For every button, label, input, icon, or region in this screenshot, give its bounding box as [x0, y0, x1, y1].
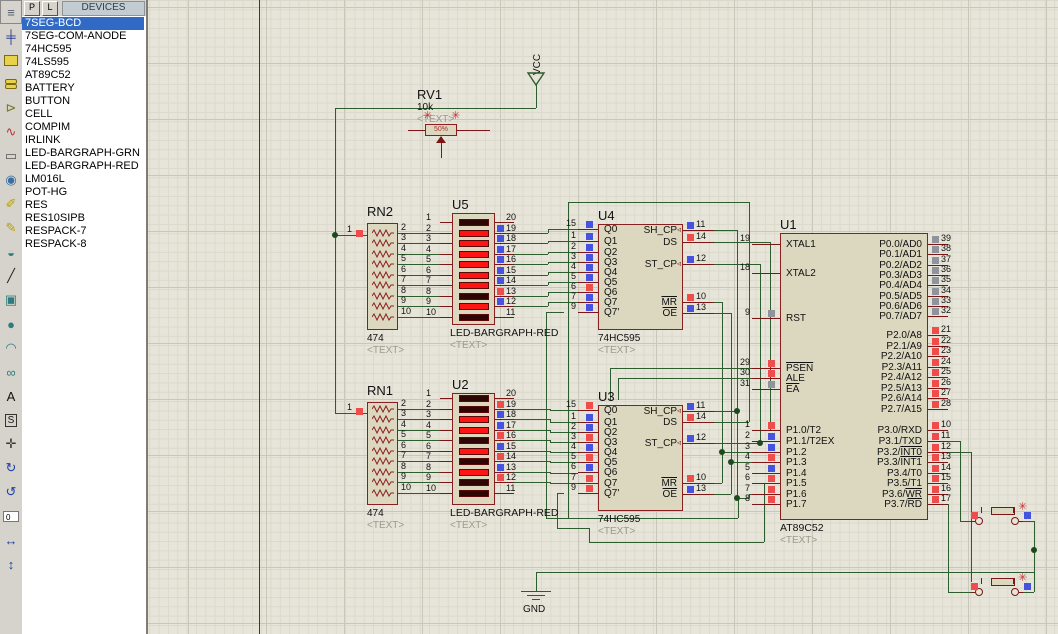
rn1-value: 474 [367, 508, 384, 519]
ic-pin-label: DS [605, 418, 677, 428]
bargraph-pin-number: 19 [506, 224, 516, 233]
ic-pin-number: 4 [728, 452, 750, 461]
ic-pin-label: P3.0/RXD [850, 426, 922, 436]
bargraph-pin [440, 461, 452, 462]
rn2-pin-number: 1 [347, 225, 352, 234]
bargraph-pin-number: 15 [506, 266, 516, 275]
logic-state-red [497, 288, 504, 295]
bargraph-pin [495, 317, 514, 318]
library-button[interactable]: L [42, 1, 58, 16]
logic-state-red [932, 422, 939, 429]
logic-state-red [932, 444, 939, 451]
device-item-res10sipb[interactable]: RES10SIPB [22, 212, 144, 225]
wire[interactable] [546, 518, 738, 519]
wire[interactable] [536, 572, 1034, 573]
wire[interactable] [514, 285, 548, 286]
bargraph-pin-number: 17 [506, 421, 516, 430]
logic-state-blue [497, 235, 504, 242]
device-item-at89c52[interactable]: AT89C52 [22, 69, 144, 82]
ic-pin [752, 389, 780, 390]
schematic-canvas[interactable]: VCCGNDRV110k<TEXT>✳✳50%RN223456789101474… [0, 0, 1058, 634]
wire[interactable] [1034, 521, 1035, 592]
ic-pin [752, 504, 780, 505]
ic-pin [578, 229, 598, 230]
wire[interactable] [398, 317, 440, 318]
resistor-element [372, 436, 394, 444]
wire[interactable] [714, 230, 737, 231]
bargraph-pin-number: 3 [426, 234, 431, 243]
bargraph-pin [440, 398, 452, 399]
device-item-74ls595[interactable]: 74LS595 [22, 56, 144, 69]
logic-state-blue [768, 444, 775, 451]
u1-text: <TEXT> [780, 535, 817, 546]
device-item-7seg-bcd[interactable]: 7SEG-BCD [22, 17, 144, 30]
logic-state-red [932, 359, 939, 366]
device-item-cell[interactable]: CELL [22, 108, 144, 121]
device-item-respack-7[interactable]: RESPACK-7 [22, 225, 144, 238]
wire[interactable] [546, 312, 547, 518]
led-segment-on [459, 416, 489, 423]
logic-state-blue [687, 305, 694, 312]
device-item-74hc595[interactable]: 74HC595 [22, 43, 144, 56]
logic-state-gray [768, 381, 775, 388]
markers-mode-icon[interactable]: ✛ [0, 432, 22, 456]
2d-circle-mode-icon[interactable]: ● [0, 312, 22, 336]
resistor-element [372, 447, 394, 455]
2d-path-mode-icon[interactable]: ∞ [0, 360, 22, 384]
ic-pin-number: 38 [941, 244, 951, 253]
ic-pin [683, 313, 714, 314]
wire[interactable] [514, 440, 550, 441]
ic-pin-number: 39 [941, 234, 951, 243]
wire[interactable] [770, 242, 771, 430]
bargraph-pin-number: 4 [426, 245, 431, 254]
bargraph-pin-number: 13 [506, 287, 516, 296]
bargraph-pin-number: 5 [426, 255, 431, 264]
resistor-element [372, 271, 394, 279]
bargraph-pin-number: 10 [426, 484, 436, 493]
ic-pin-label: P1.1/T2EX [786, 437, 834, 447]
wire[interactable] [536, 85, 537, 108]
logic-state-blue [687, 403, 694, 410]
logic-state-blue [497, 298, 504, 305]
wire[interactable] [568, 202, 749, 203]
u4-ref: U4 [598, 209, 615, 222]
wire[interactable] [514, 419, 550, 420]
component-mode-icon[interactable] [0, 48, 22, 72]
logic-state-blue [497, 277, 504, 284]
logic-state-red [586, 402, 593, 409]
rv1-lead [457, 130, 490, 131]
rv1-body[interactable]: 50% [425, 124, 457, 136]
wire[interactable] [546, 312, 564, 313]
wire[interactable] [557, 528, 589, 529]
resistor-element [372, 260, 394, 268]
led-segment-on [459, 261, 489, 268]
logic-state-red [687, 294, 694, 301]
wire[interactable] [335, 108, 536, 109]
wire[interactable] [514, 409, 550, 410]
bus-mode-icon[interactable] [0, 72, 22, 96]
wire[interactable] [514, 296, 548, 297]
2d-symbol-mode-icon[interactable]: S [0, 408, 22, 432]
rv1-actuator-up[interactable]: ✳ [423, 111, 432, 122]
ic-pin-label: ALE [786, 374, 805, 384]
bargraph-pin-number: 11 [506, 308, 515, 317]
logic-state-red [932, 475, 939, 482]
ic-pin [752, 441, 780, 442]
bargraph-pin-number: 8 [426, 463, 431, 472]
ic-pin-number: 16 [941, 484, 951, 493]
push-button-1-actuator[interactable]: ✳ [1018, 502, 1027, 513]
bargraph-pin-number: 20 [506, 389, 516, 398]
ic-pin-label: P2.7/A15 [850, 405, 922, 415]
device-pin-mode-icon[interactable]: ╪ [0, 24, 22, 48]
push-button-2-lead [1019, 592, 1023, 593]
device-item-7seg-com-anode[interactable]: 7SEG-COM-ANODE [22, 30, 144, 43]
bargraph-pin [440, 243, 452, 244]
push-button-1-post [981, 507, 982, 513]
resistor-element [372, 239, 394, 247]
device-item-respack-8[interactable]: RESPACK-8 [22, 238, 144, 251]
gnd-symbol-bar [521, 591, 551, 592]
logic-state-red [497, 474, 504, 481]
resistor-element [372, 489, 394, 497]
bargraph-pin-number: 17 [506, 245, 516, 254]
bargraph-pin [440, 285, 452, 286]
wire-junction-dot [734, 408, 740, 414]
tape-recorder-mode-icon[interactable]: ▭ [0, 144, 22, 168]
wire-junction-dot [1031, 547, 1037, 553]
object-selector-header: P L DEVICES [22, 0, 146, 16]
wire[interactable] [514, 243, 548, 244]
wire[interactable] [948, 504, 949, 592]
mirror-horizontal-icon[interactable]: ↔ [0, 528, 22, 552]
device-item-led-bargraph-grn[interactable]: LED-BARGRAPH-GRN [22, 147, 144, 160]
ic-pin-number: 32 [941, 306, 951, 315]
bargraph-pin-number: 12 [506, 297, 516, 306]
ic-pin-number: 5 [554, 272, 576, 281]
rn1-pin-number: 3 [401, 409, 406, 418]
logic-state-blue [586, 304, 593, 311]
object-selector-panel: P L DEVICES 7SEG-BCD7SEG-COM-ANODE74HC59… [22, 0, 148, 634]
wire[interactable] [514, 482, 550, 483]
ic-pin [578, 252, 598, 253]
bargraph-pin [440, 493, 452, 494]
push-button-2-cap[interactable] [991, 578, 1015, 586]
logic-state-red [768, 370, 775, 377]
bargraph-pin-number: 2 [426, 224, 431, 233]
logic-state-red [586, 284, 593, 291]
device-item-pot-hg[interactable]: POT-HG [22, 186, 144, 199]
virtual-instruments-mode-icon[interactable]: ◒ [0, 240, 22, 264]
logic-state-red [932, 465, 939, 472]
push-button-1-lead [1019, 521, 1023, 522]
logic-state-gray [932, 267, 939, 274]
push-button-1-lead [971, 521, 975, 522]
ic-pin [683, 422, 714, 423]
ic-pin-number: 15 [554, 219, 576, 228]
current-probe-mode-icon[interactable]: ✎ [0, 216, 22, 240]
u2-ref: U2 [452, 378, 469, 391]
ic-pin [578, 292, 598, 293]
ic-pin-number: 15 [554, 400, 576, 409]
wire[interactable] [714, 302, 722, 303]
wire[interactable] [514, 233, 548, 234]
ic-pin-number: 17 [941, 494, 951, 503]
2d-line-mode-icon[interactable]: ╱ [0, 264, 22, 288]
ic-pin-label: OE [605, 309, 677, 319]
rotate-ccw-icon[interactable]: ↺ [0, 480, 22, 504]
rn1-ref: RN1 [367, 384, 393, 397]
ic-pin [683, 242, 714, 243]
rn1-pin-number: 10 [401, 483, 411, 492]
clock-input-mark: ◃ [677, 407, 681, 415]
gnd-symbol-bar [532, 599, 540, 600]
logic-state-blue [497, 443, 504, 450]
push-button-2-post [981, 578, 982, 584]
rn2-pin-number: 10 [401, 307, 411, 316]
logic-state-blue [687, 222, 694, 229]
ic-pin-number: 22 [941, 336, 951, 345]
logic-state-blue [497, 267, 504, 274]
rotation-angle-field[interactable]: 0 [0, 504, 22, 528]
push-button-1-cap[interactable] [991, 507, 1015, 515]
logic-state-blue [687, 435, 694, 442]
logic-state-red [932, 390, 939, 397]
ic-pin-label: P0.4/AD4 [850, 281, 922, 291]
bargraph-pin [440, 222, 452, 223]
gnd-label: GND [523, 604, 545, 615]
ic-pin [752, 452, 780, 453]
bargraph-pin [440, 254, 452, 255]
rv1-actuator-down[interactable]: ✳ [451, 111, 460, 122]
ic-pin-number: 14 [696, 412, 706, 421]
resistor-element [372, 426, 394, 434]
device-list: 7SEG-BCD7SEG-COM-ANODE74HC59574LS595AT89… [22, 17, 144, 634]
ic-pin-number: 14 [696, 232, 706, 241]
ic-pin [752, 244, 780, 245]
bargraph-pin [440, 419, 452, 420]
wire[interactable] [960, 441, 961, 521]
logic-state-blue [768, 465, 775, 472]
mirror-vertical-icon[interactable]: ↕ [0, 552, 22, 576]
voltage-probe-mode-icon[interactable]: ✐ [0, 192, 22, 216]
wire[interactable] [722, 302, 723, 483]
ic-pin [683, 264, 714, 265]
ic-pin-number: 10 [696, 292, 706, 301]
bargraph-pin [440, 472, 452, 473]
u3-text: <TEXT> [598, 526, 635, 537]
ic-pin-number: 11 [696, 220, 705, 229]
rotate-cw-icon[interactable]: ↻ [0, 456, 22, 480]
logic-state-red [932, 486, 939, 493]
ic-pin-number: 2 [728, 431, 750, 440]
logic-state-blue [586, 274, 593, 281]
logic-state-red [932, 369, 939, 376]
ic-pin-number: 13 [941, 452, 951, 461]
device-item-battery[interactable]: BATTERY [22, 82, 144, 95]
logic-state-gray [932, 288, 939, 295]
wire[interactable] [514, 254, 548, 255]
ic-pin [752, 430, 780, 431]
wire[interactable] [335, 108, 336, 413]
device-item-lm016l[interactable]: LM016L [22, 173, 144, 186]
ic-pin-number: 13 [696, 303, 706, 312]
logic-state-red [687, 475, 694, 482]
logic-state-red [932, 348, 939, 355]
generator-mode-icon[interactable]: ◉ [0, 168, 22, 192]
graph-mode-icon[interactable]: ∿ [0, 120, 22, 144]
ic-pin-label: EA [786, 385, 799, 395]
2d-text-mode-icon[interactable]: A [0, 384, 22, 408]
ic-pin-number: 4 [554, 442, 576, 451]
bargraph-pin [440, 264, 452, 265]
ic-pin [578, 452, 598, 453]
wire[interactable] [514, 264, 548, 265]
wire[interactable] [398, 493, 440, 494]
ic-pin-label: ST_CP [605, 439, 677, 449]
logic-state-blue [586, 254, 593, 261]
u2-text: <TEXT> [450, 520, 487, 531]
logic-state-red [768, 475, 775, 482]
u2-part: LED-BARGRAPH-RED [450, 508, 559, 519]
bargraph-pin [440, 275, 452, 276]
logic-state-blue [497, 246, 504, 253]
wire[interactable] [514, 306, 548, 307]
bargraph-pin-number: 7 [426, 452, 431, 461]
ic-pin [578, 282, 598, 283]
ic-pin-label: P2.6/A14 [850, 394, 922, 404]
logic-state-gray [932, 236, 939, 243]
2d-arc-mode-icon[interactable]: ◠ [0, 336, 22, 360]
mode-toolbar: ≡╪⊳∿▭◉✐✎◒╱▣●◠∞AS✛↻↺0↔↕ [0, 0, 23, 634]
subcircuit-mode-icon[interactable]: ⊳ [0, 96, 22, 120]
ic-pin-number: 13 [696, 484, 706, 493]
wire[interactable] [589, 542, 764, 543]
ic-pin [752, 483, 780, 484]
wire[interactable] [618, 378, 619, 400]
vcc-power-terminal[interactable] [526, 72, 546, 88]
logic-state-blue [586, 233, 593, 240]
bargraph-pin-number: 4 [426, 421, 431, 430]
wire[interactable] [764, 483, 765, 542]
ic-pin-number: 4 [554, 262, 576, 271]
device-item-irlink[interactable]: IRLINK [22, 134, 144, 147]
rn2-pin-number: 7 [401, 275, 406, 284]
ic-pin [578, 442, 598, 443]
bargraph-pin-number: 16 [506, 255, 516, 264]
rn1-pin-number: 4 [401, 420, 406, 429]
led-segment-on [459, 272, 489, 279]
led-segment-on [459, 448, 489, 455]
ic-pin [578, 262, 598, 263]
ic-pin-number: 7 [554, 292, 576, 301]
ic-pin [752, 318, 780, 319]
logic-state-red [932, 401, 939, 408]
device-item-led-bargraph-red[interactable]: LED-BARGRAPH-RED [22, 160, 144, 173]
wire-junction-dot [719, 449, 725, 455]
logic-state-blue [586, 221, 593, 228]
led-segment-off [459, 490, 489, 497]
wire[interactable] [514, 472, 550, 473]
push-button-1-post [1013, 507, 1014, 513]
wire-junction-dot [332, 232, 338, 238]
led-segment-off [459, 458, 489, 465]
2d-box-mode-icon[interactable]: ▣ [0, 288, 22, 312]
logic-state-blue [1024, 583, 1031, 590]
u3-part: 74HC595 [598, 514, 640, 525]
resistor-element [372, 478, 394, 486]
ic-pin-label: P0.7/AD7 [850, 312, 922, 322]
device-item-compim[interactable]: COMPIM [22, 121, 144, 134]
ic-pin-number: 6 [554, 282, 576, 291]
bargraph-pin-number: 12 [506, 473, 516, 482]
device-item-button[interactable]: BUTTON [22, 95, 144, 108]
logic-state-gray [768, 310, 775, 317]
push-button-2-actuator[interactable]: ✳ [1018, 573, 1027, 584]
u4-part: 74HC595 [598, 333, 640, 344]
ic-pin [578, 241, 598, 242]
device-item-res[interactable]: RES [22, 199, 144, 212]
wire[interactable] [536, 572, 537, 591]
u5-text: <TEXT> [450, 340, 487, 351]
u1-part: AT89C52 [780, 523, 824, 534]
wire[interactable] [714, 483, 722, 484]
wire[interactable] [514, 430, 550, 431]
rn2-pin-number: 6 [401, 265, 406, 274]
ic-pin-number: 26 [941, 378, 951, 387]
ic-pin-label: P1.3 [786, 458, 807, 468]
rn2-pin-number: 8 [401, 286, 406, 295]
ic-pin-label: XTAL2 [786, 269, 816, 279]
resistor-element [372, 229, 394, 237]
wire[interactable] [514, 451, 550, 452]
ic-pin [578, 462, 598, 463]
ic-pin-label: P3.7/RD [850, 500, 922, 510]
led-segment-off [459, 479, 489, 486]
ic-pin [752, 368, 780, 369]
wire[interactable] [514, 275, 548, 276]
logic-state-red [687, 234, 694, 241]
ic-pin-number: 12 [696, 433, 706, 442]
ic-pin [928, 504, 948, 505]
terminals-mode-icon[interactable]: ≡ [0, 0, 22, 24]
ic-pin-number: 21 [941, 325, 951, 334]
bargraph-pin-number: 1 [426, 389, 431, 398]
wire[interactable] [514, 461, 550, 462]
ic-pin-label: RST [786, 314, 806, 324]
rn2-pin-number: 5 [401, 254, 406, 263]
bargraph-pin [440, 317, 452, 318]
ic-pin-number: 23 [941, 346, 951, 355]
resistor-element [372, 468, 394, 476]
logic-state-red [932, 454, 939, 461]
rn1-pin-number: 5 [401, 430, 406, 439]
resistor-element [372, 281, 394, 289]
wire[interactable] [948, 452, 971, 453]
ic-pin-number: 34 [941, 286, 951, 295]
ic-pin-number: 24 [941, 357, 951, 366]
wire[interactable] [589, 528, 590, 542]
rn1-pin-number: 1 [347, 403, 352, 412]
pick-devices-button[interactable]: P [24, 1, 40, 16]
logic-state-blue [497, 422, 504, 429]
bargraph-pin-number: 2 [426, 400, 431, 409]
wire[interactable] [557, 493, 564, 494]
wire[interactable] [760, 264, 761, 441]
ic-pin-number: 19 [728, 234, 750, 243]
